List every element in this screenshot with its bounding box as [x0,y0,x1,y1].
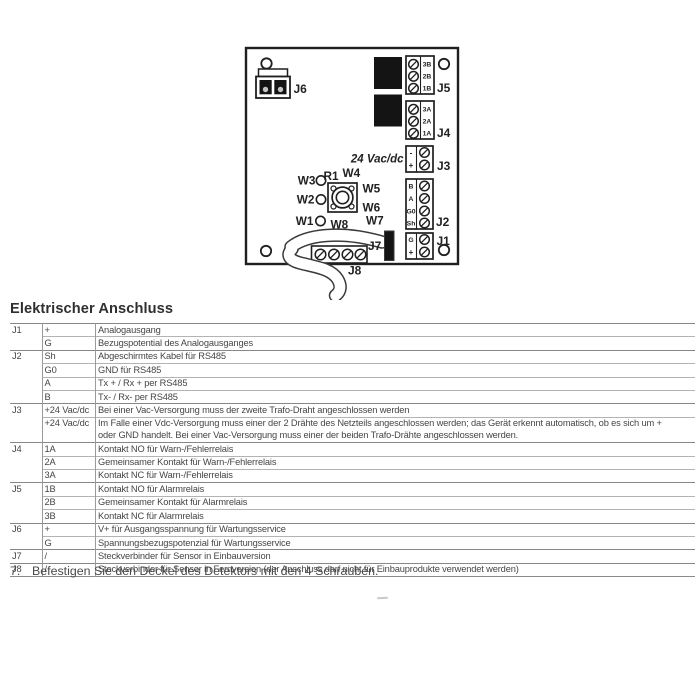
connector-j7 [385,231,395,261]
description-cell: V+ für Ausgangsspannung für Wartungsserv… [95,523,695,536]
pin-label: Sh [407,220,416,227]
label-w4: W4 [343,166,361,180]
table-row: J2ShAbgeschirmtes Kabel für RS485 [10,350,695,363]
connector-cell [10,510,42,523]
pin-cell: + [42,324,95,337]
table-row: J3+24 Vac/dcBei einer Vac-Versorgung mus… [10,404,695,417]
description-cell: Im Falle einer Vdc-Versorgung muss einer… [95,417,695,442]
pin-label: + [409,161,414,170]
connector-cell: J5 [10,483,42,496]
label-w6: W6 [363,201,381,215]
label-j5: J5 [437,81,451,95]
pin-cell: A [42,377,95,390]
jumper-w2-pad [316,195,325,204]
table-row: ATx + / Rx + per RS485 [10,377,695,390]
table-row: 3AKontakt NC für Warn-/Fehlerrelais [10,469,695,482]
connector-cell [10,456,42,469]
pin-label: 3A [423,107,432,114]
label-j1: J1 [437,234,451,248]
table-row: 2AGemeinsamer Kontakt für Warn-/Fehlerre… [10,456,695,469]
connector-cell: J1 [10,324,42,337]
description-cell: Bei einer Vac-Versorgung muss der zweite… [95,404,695,417]
trimmer-r1 [328,183,357,212]
pin-cell: 3B [42,510,95,523]
label-j2: J2 [436,215,450,229]
pin-label: 2B [423,74,432,81]
label-w8: W8 [331,218,349,232]
description-line: Im Falle einer Vdc-Versorgung muss einer… [98,418,693,430]
label-j6: J6 [294,82,308,96]
pin-label: A [409,196,414,203]
connector-j8 [312,246,368,263]
description-cell: Analogausgang [95,324,695,337]
pin-cell: +24 Vac/dc [42,417,95,442]
screw-hole-icon [439,59,449,69]
pin-label: 2A [423,119,432,126]
table-row: J6+V+ für Ausgangsspannung für Wartungss… [10,523,695,536]
pin-label: 1B [423,86,432,93]
connector-cell: J3 [10,404,42,417]
description-cell: Gemeinsamer Kontakt für Warn-/Fehlerrela… [95,456,695,469]
relay-block-2 [374,95,402,127]
label-w5: W5 [363,182,381,196]
table-row: +24 Vac/dcIm Falle einer Vdc-Versorgung … [10,417,695,442]
table-row: 3BKontakt NC für Alarmrelais [10,510,695,523]
pin-label: G0 [406,208,415,215]
table-row: J1+Analogausgang [10,324,695,337]
manual-page: J6 J5 J4 J3 J2 J1 J7 J8 24 Vac/dc R1 W4 … [0,0,700,700]
pcb-diagram: J6 J5 J4 J3 J2 J1 J7 J8 24 Vac/dc R1 W4 … [0,0,700,300]
table-row: GBezugspotential des Analogausganges [10,337,695,350]
jumper-w1-pad [316,216,325,225]
connector-cell: J4 [10,443,42,456]
label-24vacdc: 24 Vac/dc [350,154,404,166]
pin-label: + [409,248,414,257]
relay-block-1 [374,57,402,89]
table-row: J41AKontakt NO für Warn-/Fehlerrelais [10,443,695,456]
label-w3: W3 [298,174,316,188]
description-cell: Bezugspotential des Analogausganges [95,337,695,350]
pin-cell: + [42,523,95,536]
pin-label: - [410,149,413,158]
screw-hole-icon [261,58,271,68]
pin-cell: G [42,537,95,550]
table-row: G0GND für RS485 [10,364,695,377]
pin-label: G [408,237,413,244]
description-cell: Tx- / Rx- per RS485 [95,391,695,404]
connector-cell: J2 [10,350,42,363]
pin-label: 3B [423,62,432,69]
pin-cell: G [42,337,95,350]
description-cell: Tx + / Rx + per RS485 [95,377,695,390]
pin-cell: Sh [42,350,95,363]
label-j8: J8 [348,264,362,278]
pin-cell: / [42,550,95,563]
section-title: Elektrischer Anschluss [10,301,173,317]
scan-artifact-dash [377,597,388,600]
pin-cell: G0 [42,364,95,377]
connector-cell [10,377,42,390]
table-row: 2BGemeinsamer Kontakt für Alarmrelais [10,496,695,509]
description-cell: Spannungsbezugspotenzial für Wartungsser… [95,537,695,550]
pin-cell: 1B [42,483,95,496]
jumper-pads [316,176,326,226]
connector-cell [10,496,42,509]
connector-cell: J7 [10,550,42,563]
table-row: GSpannungsbezugspotenzial für Wartungsse… [10,537,695,550]
label-r1: R1 [324,169,340,183]
screw-hole-icon [261,246,271,256]
connection-table-body: J1+AnalogausgangGBezugspotential des Ana… [10,324,695,577]
description-cell: Abgeschirmtes Kabel für RS485 [95,350,695,363]
pin-label: 1A [423,131,432,138]
connector-cell [10,337,42,350]
label-w1: W1 [296,214,314,228]
table-row: J51BKontakt NO für Alarmrelais [10,483,695,496]
instruction-number: 7. [10,564,32,578]
connector-cell [10,417,42,442]
instruction-step: 7. Befestigen Sie den Deckel des Detekto… [10,564,610,578]
pin-label: B [409,183,414,190]
connector-cell [10,469,42,482]
pin-cell: +24 Vac/dc [42,404,95,417]
description-cell: Kontakt NO für Alarmrelais [95,483,695,496]
table-row: BTx- / Rx- per RS485 [10,391,695,404]
description-cell: GND für RS485 [95,364,695,377]
description-cell: Steckverbinder für Sensor in Einbauversi… [95,550,695,563]
connector-cell [10,391,42,404]
label-j4: J4 [437,126,451,140]
description-cell: Gemeinsamer Kontakt für Alarmrelais [95,496,695,509]
label-w7: W7 [366,214,384,228]
pin-cell: 1A [42,443,95,456]
pin-cell: 3A [42,469,95,482]
table-row: J7/Steckverbinder für Sensor in Einbauve… [10,550,695,563]
connector-cell [10,364,42,377]
connector-j6 [256,69,290,98]
label-w2: W2 [297,193,315,207]
pin-cell: 2B [42,496,95,509]
description-cell: Kontakt NC für Warn-/Fehlerrelais [95,469,695,482]
instruction-text: Befestigen Sie den Deckel des Detektors … [32,564,378,578]
connector-cell [10,537,42,550]
label-j3: J3 [437,159,451,173]
description-line: oder GND handelt. Bei einer Vac-Versorgu… [98,430,693,442]
connection-table: J1+AnalogausgangGBezugspotential des Ana… [10,323,695,577]
pin-cell: 2A [42,456,95,469]
pin-cell: B [42,391,95,404]
connector-cell: J6 [10,523,42,536]
label-j7: J7 [368,239,382,253]
pcb-diagram-svg: J6 J5 J4 J3 J2 J1 J7 J8 24 Vac/dc R1 W4 … [0,0,700,300]
description-cell: Kontakt NC für Alarmrelais [95,510,695,523]
description-cell: Kontakt NO für Warn-/Fehlerrelais [95,443,695,456]
